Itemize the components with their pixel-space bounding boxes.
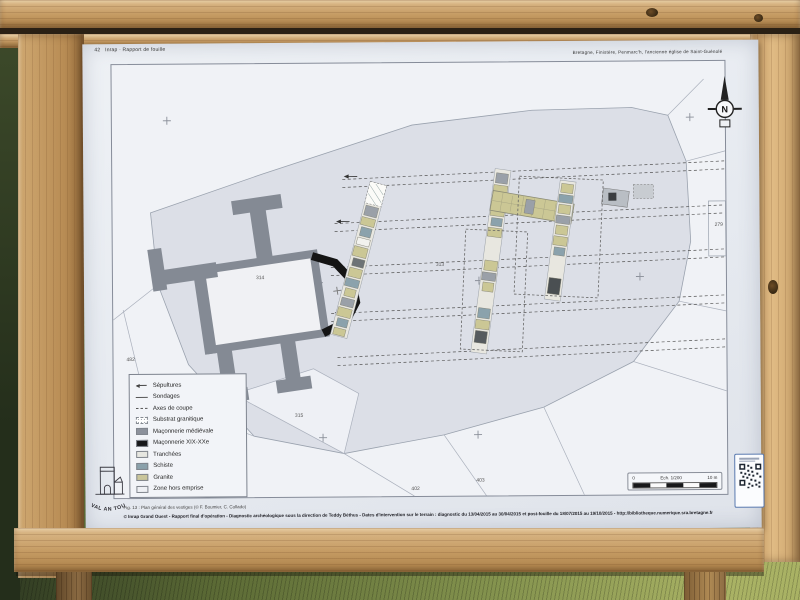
report-header: 42 Inrap · Rapport de fouille bbox=[94, 47, 165, 53]
schist-swatch bbox=[136, 463, 148, 470]
out-of-area-swatch bbox=[136, 486, 148, 493]
wood-knot bbox=[768, 280, 778, 294]
granite-substrate-swatch bbox=[136, 417, 148, 424]
top-plank bbox=[0, 0, 800, 28]
qr-code-sticker bbox=[734, 454, 764, 508]
scale-ratio: Ech. 1/200 bbox=[660, 475, 682, 480]
outdoor-photo-scene: 42 Inrap · Rapport de fouille Bretagne, … bbox=[0, 0, 800, 600]
burial-arrow-symbol bbox=[136, 382, 148, 389]
parcel-label-315: 315 bbox=[295, 413, 303, 419]
north-letter: N bbox=[721, 104, 728, 114]
parcel-label-482: 482 bbox=[126, 357, 134, 363]
legend-item-substrat-granitique: Substrat granitique bbox=[136, 414, 246, 426]
scale-bar: 0 Ech. 1/200 10 m bbox=[627, 472, 722, 491]
logo-text: VAL AN TOUR bbox=[87, 462, 127, 513]
scale-start: 0 bbox=[632, 476, 635, 481]
legend-item-tranchees: Tranchées bbox=[136, 448, 246, 460]
qr-caption-line bbox=[739, 458, 759, 460]
wood-knot bbox=[754, 14, 763, 22]
svg-text:VAL AN TOUR: VAL AN TOUR bbox=[87, 462, 127, 513]
legend-item-schiste: Schiste bbox=[136, 460, 246, 472]
parcel-label-403: 403 bbox=[476, 478, 484, 484]
scale-bar-segments bbox=[632, 482, 717, 489]
qr-caption-line2 bbox=[739, 460, 755, 462]
legend-item-maconnerie-medievale: Maçonnerie médiévale bbox=[136, 425, 246, 437]
qr-code bbox=[738, 463, 762, 489]
legend-item-granite: Granite bbox=[136, 471, 246, 483]
legend-item-axes-de-coupe: Axes de coupe bbox=[136, 402, 246, 414]
figure-caption: Fig. 13 : Plan général des vestiges (© F… bbox=[124, 504, 247, 510]
grass-shadow-left bbox=[0, 28, 20, 600]
scale-end: 10 m bbox=[707, 475, 717, 480]
tower-drawing bbox=[95, 467, 124, 494]
site-location: Bretagne, Finistère, Penmarc'h, l'ancien… bbox=[402, 49, 722, 56]
frame-bottom-rail bbox=[14, 528, 764, 572]
legend-item-maconnerie-xix-xxe: Maçonnerie XIX-XXe bbox=[136, 437, 246, 449]
map-legend: Sépultures Sondages Axes de coupe Substr… bbox=[129, 373, 248, 498]
credit-line: © Inrap Grand Ouest - Rapport final d'op… bbox=[124, 510, 748, 519]
legend-item-zone-hors-emprise: Zone hors emprise bbox=[136, 483, 246, 495]
frame-left-stile bbox=[18, 34, 84, 578]
parcel-label-313: 313 bbox=[436, 262, 444, 268]
north-arrow: N bbox=[707, 74, 743, 132]
modern-masonry-swatch bbox=[136, 440, 148, 447]
medieval-masonry-swatch bbox=[136, 428, 148, 435]
trench-swatch bbox=[136, 451, 148, 458]
granite-swatch bbox=[136, 474, 148, 481]
report-title: Inrap · Rapport de fouille bbox=[105, 47, 165, 53]
wood-knot bbox=[646, 8, 658, 17]
information-panel: 42 Inrap · Rapport de fouille Bretagne, … bbox=[82, 40, 761, 533]
legend-item-sondages: Sondages bbox=[136, 391, 246, 403]
legend-item-sepultures: Sépultures bbox=[136, 379, 246, 391]
parcel-label-314: 314 bbox=[256, 275, 264, 281]
section-axis-symbol bbox=[136, 405, 148, 412]
report-number: 42 bbox=[94, 47, 100, 53]
parcel-label-279: 279 bbox=[715, 222, 723, 228]
parcel-label-402: 402 bbox=[411, 486, 419, 492]
sounding-line-symbol bbox=[136, 394, 148, 401]
